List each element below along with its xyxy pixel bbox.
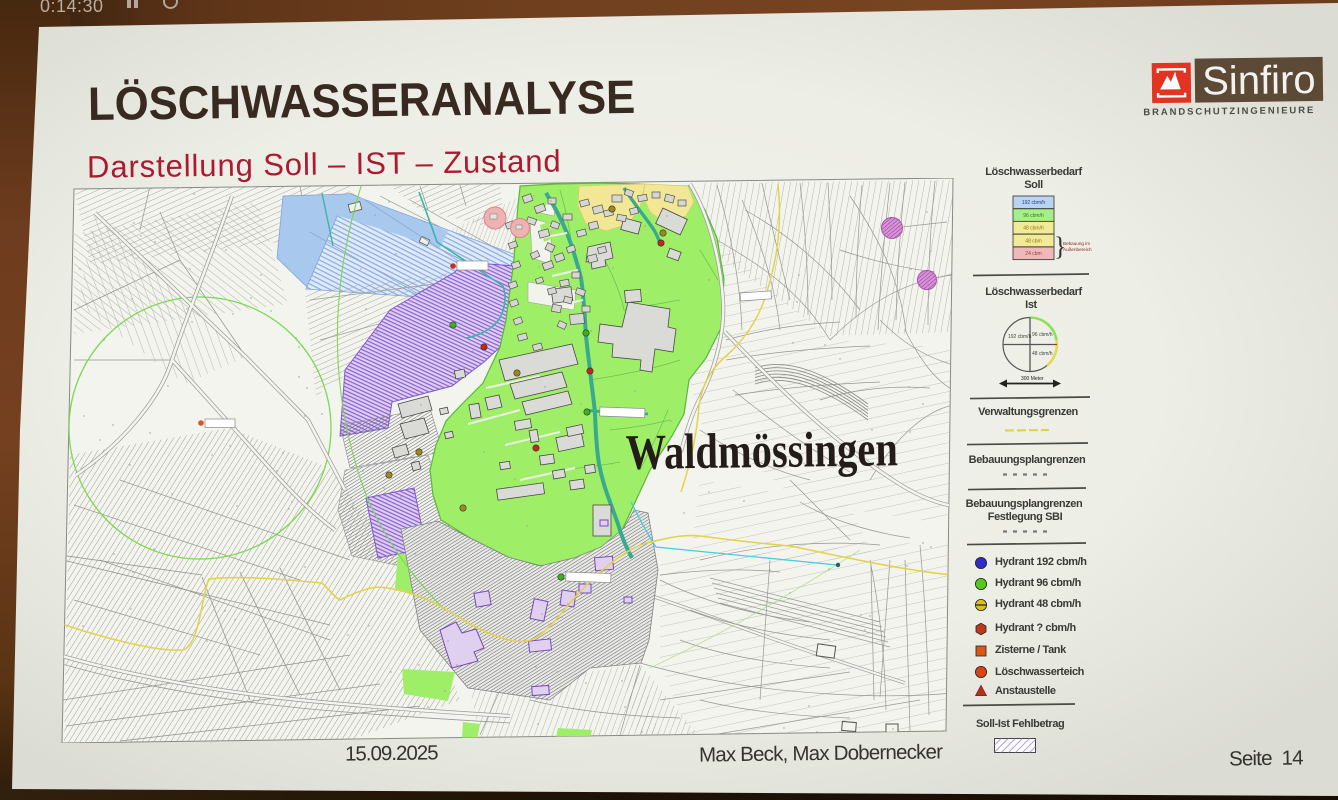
- svg-text:300 Meter: 300 Meter: [1021, 376, 1044, 382]
- svg-text:48 cbm: 48 cbm: [1025, 238, 1041, 244]
- svg-text:192 cbm/h: 192 cbm/h: [1022, 200, 1046, 206]
- svg-text:48 cbm/h: 48 cbm/h: [1023, 226, 1044, 232]
- svg-text:96 cbm/h: 96 cbm/h: [1032, 332, 1053, 338]
- svg-text:48 cbm/h: 48 cbm/h: [1032, 351, 1053, 357]
- svg-text:BRANDSCHUTZINGENIEURE: BRANDSCHUTZINGENIEURE: [1143, 105, 1315, 118]
- svg-text:192 cbm/h: 192 cbm/h: [1008, 334, 1032, 340]
- svg-text:96 cbm/h: 96 cbm/h: [1023, 213, 1044, 219]
- svg-text:24 cbm: 24 cbm: [1025, 251, 1041, 257]
- svg-text:Waldmössingen: Waldmössingen: [625, 420, 898, 480]
- svg-text:Außenbereich: Außenbereich: [1063, 247, 1092, 252]
- svg-text:Sinfiro: Sinfiro: [1202, 58, 1316, 103]
- svg-text:Bebauung im: Bebauung im: [1063, 241, 1090, 246]
